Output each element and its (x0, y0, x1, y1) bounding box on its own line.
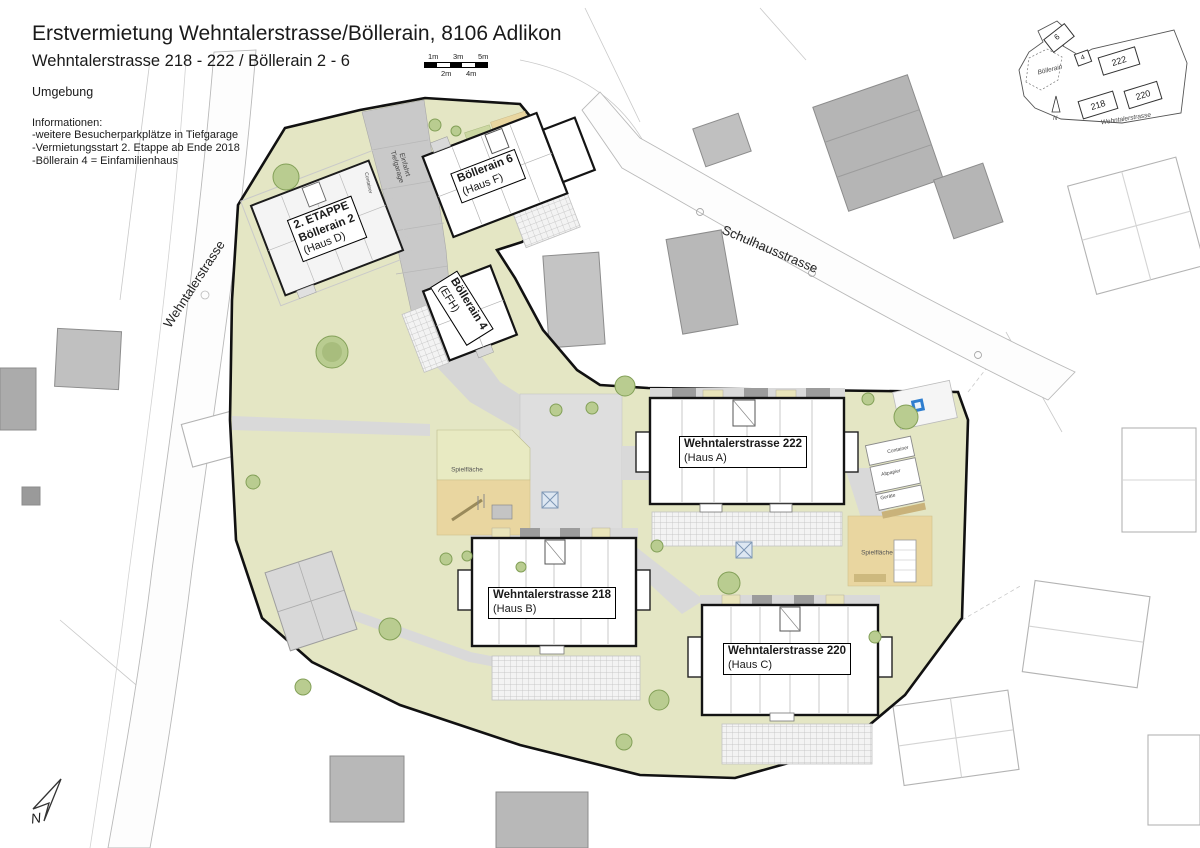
scale-tick: 2m (441, 69, 451, 78)
scale-bar: 1m 3m 5m 2m 4m (424, 52, 490, 76)
info-line: -Vermietungsstart 2. Etappe ab Ende 2018 (32, 142, 562, 155)
playground-left (437, 430, 530, 535)
site-plan-page: Erstvermietung Wehntalerstrasse/Böllerai… (0, 0, 1200, 848)
playground-left-label: Spielfläche (451, 467, 483, 474)
scale-tick: 1m (428, 52, 438, 61)
scale-tick: 5m (478, 52, 488, 61)
minimap-north-label: N (1053, 116, 1057, 122)
section-label: Umgebung (32, 85, 562, 99)
building-label-haus-c: Wehntalerstrasse 220 (Haus C) (723, 643, 851, 675)
playground-right-label: Spielfläche (861, 550, 893, 557)
info-line: -weitere Besucherparkplätze in Tiefgarag… (32, 129, 562, 142)
scale-bar-strip (424, 62, 488, 68)
info-heading: Informationen: (32, 117, 562, 129)
scale-tick: 3m (453, 52, 463, 61)
building-label-haus-a: Wehntalerstrasse 222 (Haus A) (679, 436, 807, 468)
building-label-haus-b: Wehntalerstrasse 218 (Haus B) (488, 587, 616, 619)
page-title: Erstvermietung Wehntalerstrasse/Böllerai… (32, 22, 562, 46)
north-label: N (30, 809, 42, 826)
header: Erstvermietung Wehntalerstrasse/Böllerai… (32, 22, 562, 168)
scale-tick: 4m (466, 69, 476, 78)
